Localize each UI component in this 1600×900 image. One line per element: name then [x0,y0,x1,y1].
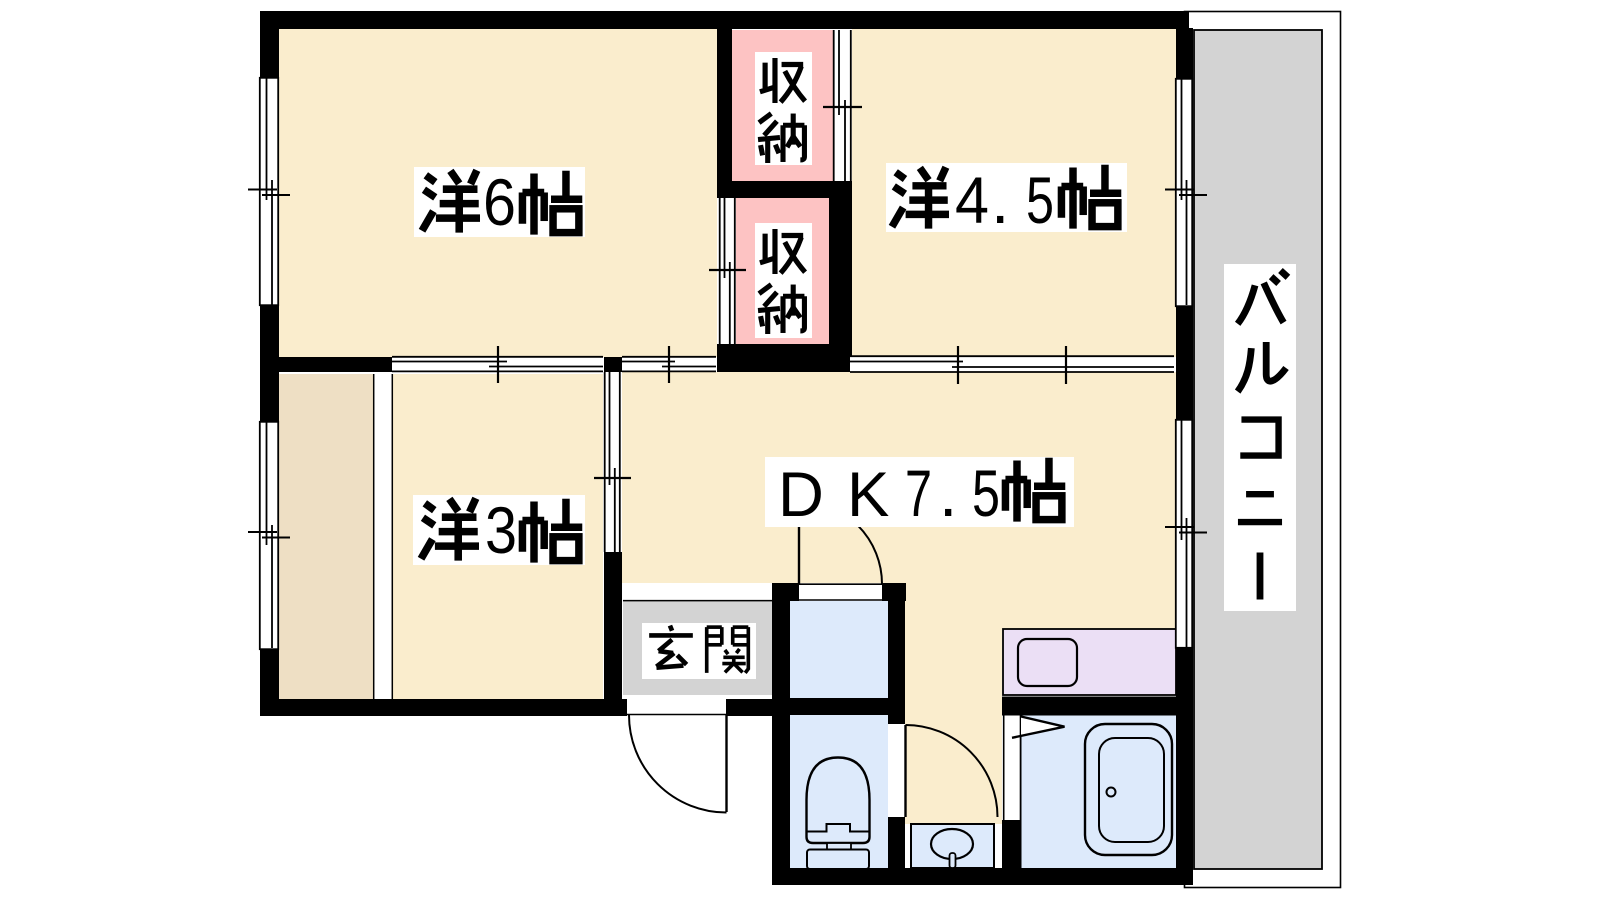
svg-text:7: 7 [905,456,932,530]
svg-text:4: 4 [955,163,989,237]
svg-text:.: . [991,163,1009,237]
svg-text:.: . [939,456,957,530]
svg-text:6: 6 [483,165,516,239]
svg-text:5: 5 [972,456,1000,530]
svg-text:K: K [847,460,889,530]
svg-text:5: 5 [1026,163,1054,237]
svg-text:3: 3 [485,493,517,567]
svg-text:D: D [778,460,824,530]
